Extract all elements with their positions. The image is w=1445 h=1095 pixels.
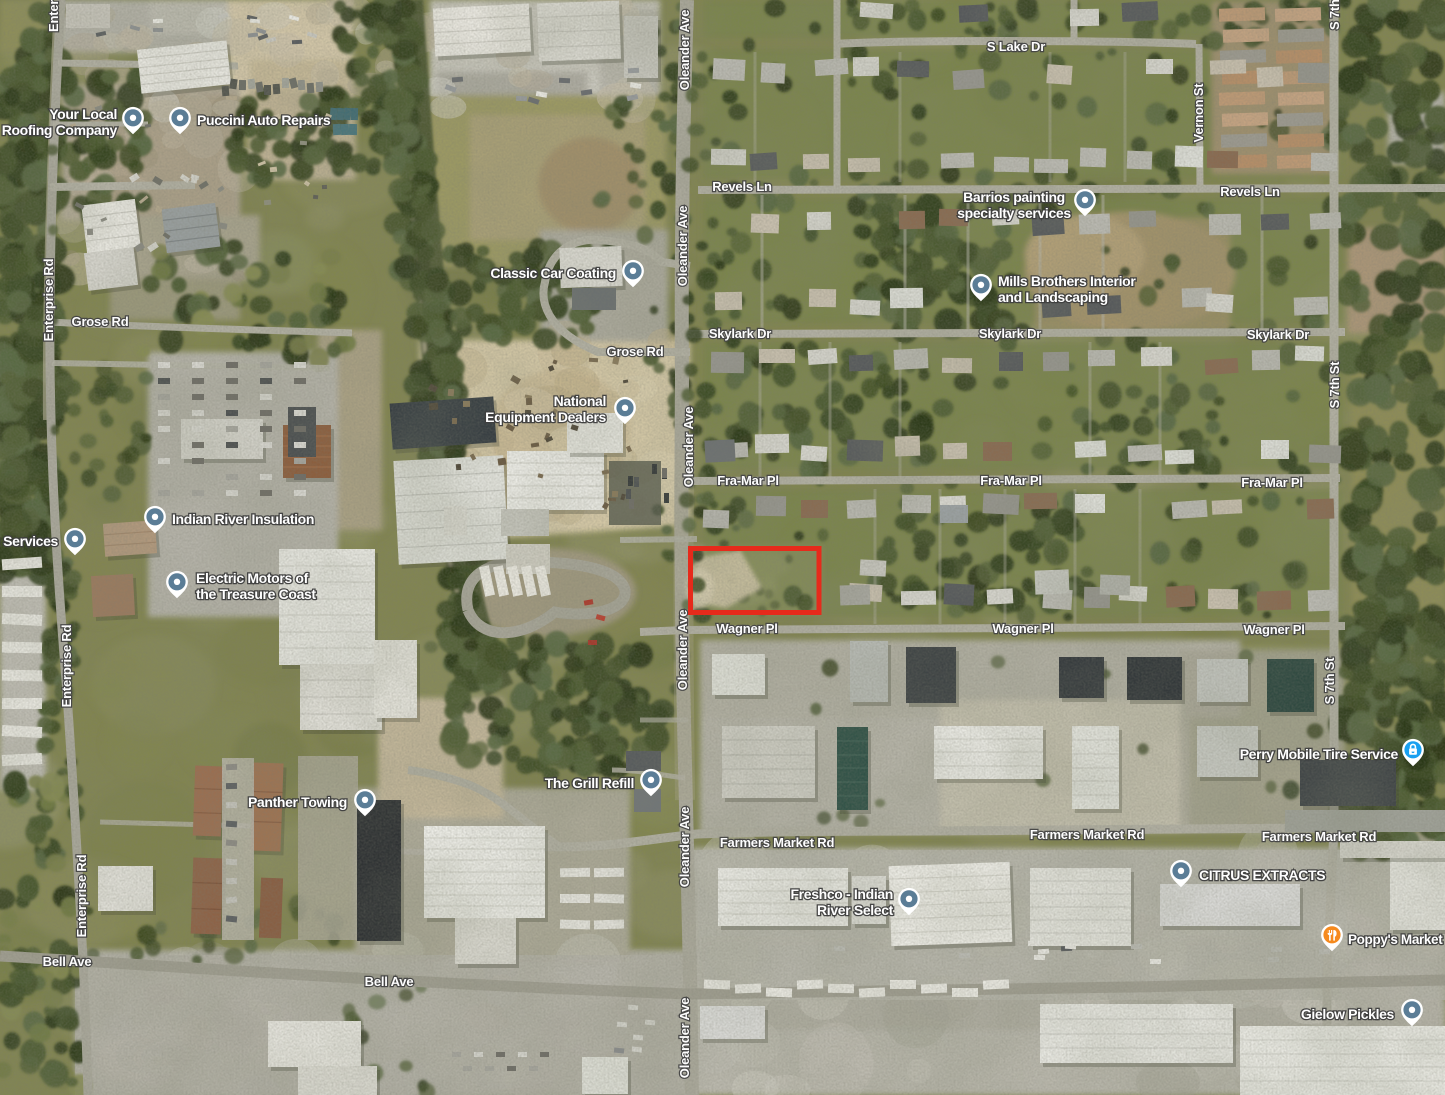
svg-text:Fra-Mar Pl: Fra-Mar Pl xyxy=(980,473,1042,488)
svg-text:CITRUS EXTRACTS: CITRUS EXTRACTS xyxy=(1199,867,1325,883)
svg-text:and Landscaping: and Landscaping xyxy=(998,289,1108,305)
svg-text:Oleander Ave: Oleander Ave xyxy=(677,10,692,90)
svg-text:S 7th St: S 7th St xyxy=(1322,657,1337,705)
svg-text:Gielow Pickles: Gielow Pickles xyxy=(1301,1006,1395,1022)
svg-text:Bell Ave: Bell Ave xyxy=(365,974,414,989)
svg-text:Skylark Dr: Skylark Dr xyxy=(979,326,1041,341)
svg-text:the Treasure Coast: the Treasure Coast xyxy=(196,586,316,602)
svg-text:g Services: g Services xyxy=(0,533,59,549)
svg-text:Farmers Market Rd: Farmers Market Rd xyxy=(1030,827,1145,842)
svg-text:Enterprise Rd: Enterprise Rd xyxy=(74,854,89,937)
svg-text:Panther Towing: Panther Towing xyxy=(248,794,347,810)
svg-text:Grose Rd: Grose Rd xyxy=(72,314,129,329)
svg-text:Barrios painting: Barrios painting xyxy=(963,189,1065,205)
svg-text:Indian River Insulation: Indian River Insulation xyxy=(172,511,314,527)
svg-text:specialty services: specialty services xyxy=(957,205,1071,221)
svg-text:Oleander Ave: Oleander Ave xyxy=(675,610,690,690)
svg-text:Enterprise Rd: Enterprise Rd xyxy=(59,624,74,707)
svg-text:Farmers Market Rd: Farmers Market Rd xyxy=(720,835,835,850)
svg-text:Equipment Dealers: Equipment Dealers xyxy=(485,409,606,425)
svg-text:Wagner Pl: Wagner Pl xyxy=(992,621,1053,636)
svg-text:Vernon St: Vernon St xyxy=(1191,83,1206,143)
svg-text:Oleander Ave: Oleander Ave xyxy=(677,807,692,887)
svg-text:Oleander Ave: Oleander Ave xyxy=(675,206,690,286)
svg-text:Farmers Market Rd: Farmers Market Rd xyxy=(1262,829,1377,844)
svg-text:Wagner Pl: Wagner Pl xyxy=(716,621,777,636)
svg-text:National: National xyxy=(554,393,606,409)
svg-text:Bell Ave: Bell Ave xyxy=(43,954,92,969)
svg-text:Wagner Pl: Wagner Pl xyxy=(1243,622,1304,637)
svg-text:Revels Ln: Revels Ln xyxy=(712,179,772,194)
svg-text:Oleander Ave: Oleander Ave xyxy=(681,407,696,487)
svg-text:Enterprise Rd: Enterprise Rd xyxy=(46,0,61,32)
svg-text:Your Local: Your Local xyxy=(49,106,117,122)
svg-text:Fra-Mar Pl: Fra-Mar Pl xyxy=(1241,475,1303,490)
svg-text:Classic Car Coating: Classic Car Coating xyxy=(490,265,616,281)
svg-text:Mills Brothers Interior: Mills Brothers Interior xyxy=(998,273,1136,289)
svg-text:Enterprise Rd: Enterprise Rd xyxy=(41,258,56,341)
svg-text:S 7th St: S 7th St xyxy=(1327,361,1342,409)
svg-text:Perry Mobile Tire Service: Perry Mobile Tire Service xyxy=(1240,746,1399,762)
svg-text:Oleander Ave: Oleander Ave xyxy=(677,998,692,1078)
svg-text:Grose Rd: Grose Rd xyxy=(607,344,664,359)
svg-text:Fra-Mar Pl: Fra-Mar Pl xyxy=(717,473,779,488)
svg-text:Skylark Dr: Skylark Dr xyxy=(709,326,771,341)
svg-text:Puccini Auto Repairs: Puccini Auto Repairs xyxy=(197,112,331,128)
svg-text:Roofing Company: Roofing Company xyxy=(2,122,118,138)
svg-text:River Select: River Select xyxy=(817,902,894,918)
svg-text:Freshco - Indian: Freshco - Indian xyxy=(790,886,893,902)
svg-text:S 7th St: S 7th St xyxy=(1327,0,1342,30)
svg-text:The Grill Refill: The Grill Refill xyxy=(545,775,634,791)
svg-text:Electric Motors of: Electric Motors of xyxy=(196,570,309,586)
svg-text:Skylark Dr: Skylark Dr xyxy=(1247,327,1309,342)
svg-text:Revels Ln: Revels Ln xyxy=(1220,184,1280,199)
svg-text:Poppy's Market: Poppy's Market xyxy=(1348,932,1443,947)
svg-text:S Lake Dr: S Lake Dr xyxy=(987,39,1045,54)
